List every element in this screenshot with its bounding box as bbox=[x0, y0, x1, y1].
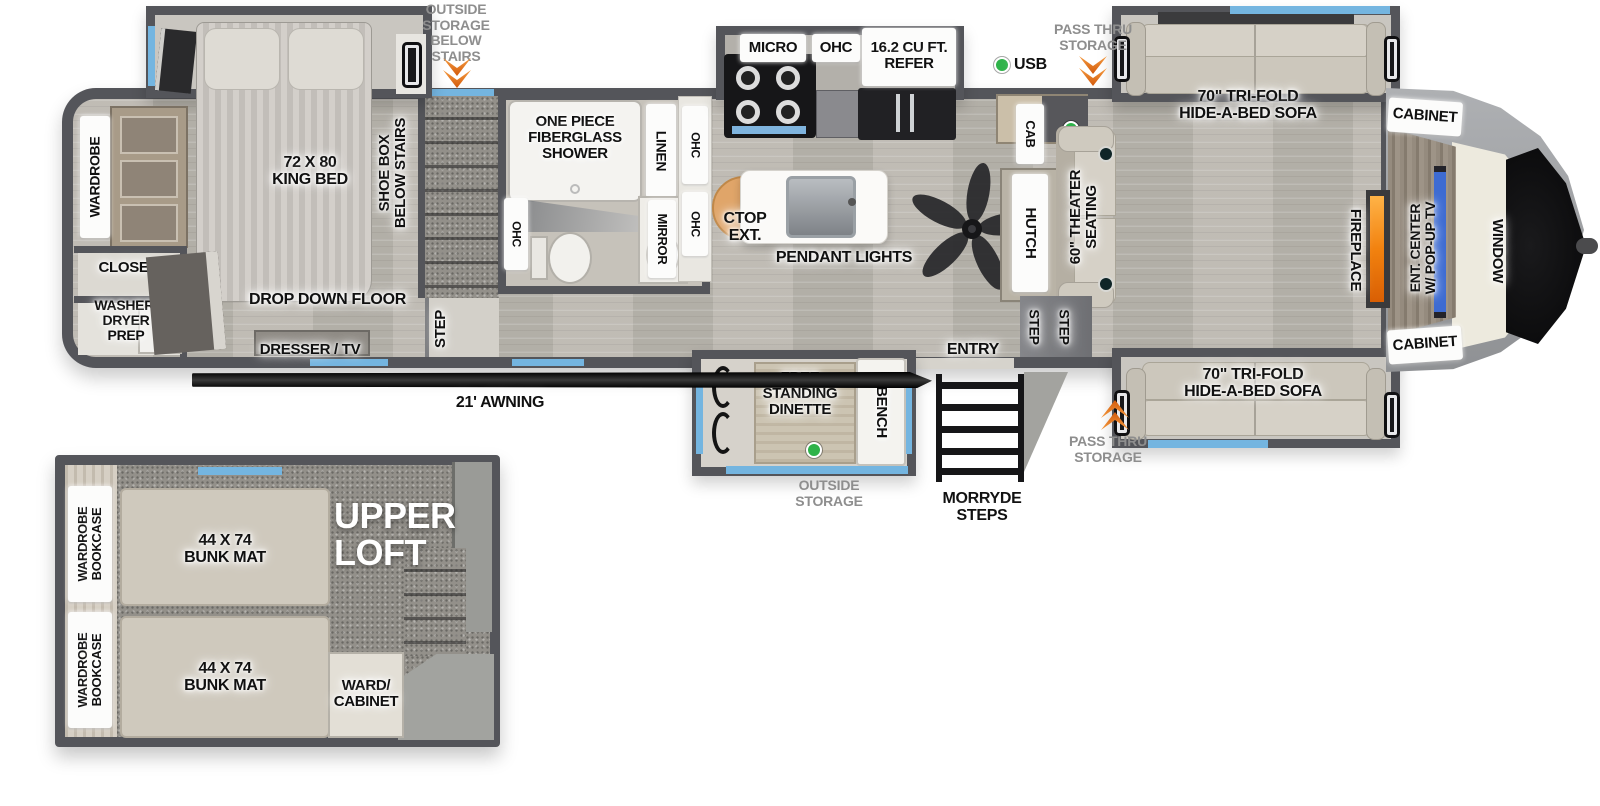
burner-icon bbox=[776, 66, 800, 90]
fireplace-label-wrap: FIREPLACE bbox=[1342, 194, 1368, 306]
staircase bbox=[425, 96, 499, 298]
window-strip-bottom-2 bbox=[512, 359, 584, 366]
usb-label: USB bbox=[1014, 56, 1058, 73]
slide-window-icon bbox=[1384, 36, 1400, 82]
closet-wall-top bbox=[74, 246, 186, 253]
dinette-window-bottom bbox=[726, 466, 908, 474]
bath-ohc-left-label: OHC bbox=[510, 221, 523, 247]
refer-label: 16.2 CU FT. REFER bbox=[862, 40, 956, 72]
king-bed-label: 72 X 80 KING BED bbox=[235, 154, 385, 188]
stair-wall bbox=[418, 96, 425, 298]
burner-icon bbox=[736, 100, 760, 124]
sofa-armrest bbox=[1366, 22, 1386, 96]
usb-led-icon bbox=[994, 57, 1010, 73]
pendant-lights-label: PENDANT LIGHTS bbox=[762, 249, 926, 266]
step-rung bbox=[942, 468, 1018, 475]
awning-icon bbox=[192, 372, 932, 388]
shoe-box-label: SHOE BOX BELOW STAIRS bbox=[377, 118, 409, 228]
ohc-upper-label: OHC bbox=[689, 132, 702, 158]
pillow bbox=[288, 28, 364, 90]
micro-label: MICRO bbox=[740, 40, 806, 56]
bench-label: BENCH bbox=[873, 386, 889, 438]
hutch-label: HUTCH bbox=[1022, 208, 1038, 259]
wardrobe-label: WARDROBE bbox=[88, 137, 103, 218]
entry-label: ENTRY bbox=[934, 341, 1012, 358]
sofa-top-seam bbox=[1254, 24, 1256, 94]
loft-wardrobe-lower-label: WARDROBE BOOKCASE bbox=[76, 633, 104, 708]
entry-step-right-wrap: STEP bbox=[1052, 300, 1076, 354]
outside-storage-bottom-label: OUTSIDE STORAGE bbox=[790, 478, 868, 509]
theater-label-wrap: 60" THEATER SEATING bbox=[1058, 152, 1110, 282]
ent-center-label: ENT. CENTER W/ POP-UP TV bbox=[1408, 202, 1438, 295]
dinette-chair-icon bbox=[712, 412, 734, 454]
wardrobe-plate: WARDROBE bbox=[80, 116, 110, 238]
shower-label: ONE PIECE FIBERGLASS SHOWER bbox=[512, 114, 638, 162]
loft-wardrobe-upper-label: WARDROBE BOOKCASE bbox=[76, 507, 104, 582]
kitchen-counter bbox=[816, 90, 862, 138]
faucet-icon bbox=[848, 198, 856, 206]
ent-center-label-wrap: ENT. CENTER W/ POP-UP TV bbox=[1398, 178, 1448, 318]
bunk-upper-label: 44 X 74 BUNK MAT bbox=[145, 532, 305, 566]
loft-wardrobe-plate-lower: WARDROBE BOOKCASE bbox=[68, 612, 112, 728]
toilet-tank-icon bbox=[530, 236, 548, 280]
cab-plate: CAB bbox=[1016, 104, 1044, 164]
dresser bbox=[110, 106, 188, 248]
loft-ward-cabinet-label: WARD/ CABINET bbox=[330, 678, 402, 710]
pass-thru-top-label: PASS THRU STORAGE bbox=[1038, 22, 1148, 53]
windshield bbox=[1506, 148, 1586, 344]
loft-wardrobe-plate-upper: WARDROBE BOOKCASE bbox=[68, 486, 112, 602]
dinette-window-right bbox=[905, 378, 912, 454]
entry-step-right-label: STEP bbox=[1057, 309, 1072, 344]
step-rail bbox=[1018, 374, 1024, 482]
bedroom-slide-window-left bbox=[148, 26, 155, 86]
entry-opening bbox=[916, 358, 1014, 369]
bedroom-step-label: STEP bbox=[433, 310, 449, 348]
step-rung bbox=[942, 382, 1018, 389]
pass-thru-bottom-label: PASS THRU STORAGE bbox=[1048, 434, 1168, 465]
cab-label: CAB bbox=[1023, 120, 1037, 147]
window-strip-top bbox=[430, 89, 494, 96]
chevron-up-icon bbox=[1098, 398, 1132, 432]
step-rung bbox=[942, 448, 1018, 455]
drawer bbox=[120, 116, 178, 154]
morryde-label: MORRYDE STEPS bbox=[936, 490, 1028, 524]
window-label-wrap: WINDOW bbox=[1484, 196, 1510, 306]
step-rung bbox=[942, 426, 1018, 433]
toilet-bowl-icon bbox=[548, 232, 592, 284]
kitchen-ohc-label: OHC bbox=[812, 40, 860, 56]
fireplace-label: FIREPLACE bbox=[1347, 209, 1363, 291]
entry-step-left-label: STEP bbox=[1027, 309, 1042, 344]
shower-drain-icon bbox=[570, 184, 580, 194]
window-strip-sofa-top bbox=[1230, 6, 1390, 14]
sofa-top-label: 70" TRI-FOLD HIDE-A-BED SOFA bbox=[1150, 88, 1346, 122]
fireplace-icon bbox=[1370, 196, 1384, 302]
floorplan-canvas: WARDROBE CLOSET WASHER/ DRYER PREP 72 X … bbox=[0, 0, 1600, 806]
drop-down-floor-label: DROP DOWN FLOOR bbox=[235, 291, 420, 308]
mirror-label: MIRROR bbox=[655, 214, 669, 265]
ohc-lower-label: OHC bbox=[689, 211, 702, 237]
sofa-bottom-back bbox=[1142, 400, 1370, 436]
theater-label: 60" THEATER SEATING bbox=[1068, 170, 1100, 264]
tv-cabinet bbox=[146, 251, 226, 355]
window-label: WINDOW bbox=[1489, 219, 1505, 283]
linen-plate: LINEN bbox=[646, 104, 676, 198]
dresser-tv-label: DRESSER / TV bbox=[240, 342, 380, 358]
ohc-lower-plate: OHC bbox=[682, 192, 708, 256]
chevron-down-icon bbox=[440, 56, 474, 90]
loft-window-strip bbox=[198, 467, 282, 475]
chevron-down-icon bbox=[1076, 54, 1110, 88]
pillow bbox=[204, 28, 280, 90]
step-rung bbox=[942, 404, 1018, 411]
bunk-lower-label: 44 X 74 BUNK MAT bbox=[145, 660, 305, 694]
awning-label: 21' AWNING bbox=[430, 394, 570, 411]
refrigerator-icon bbox=[858, 88, 956, 140]
dinette-window-left bbox=[696, 378, 703, 454]
slide-window-icon bbox=[1384, 392, 1400, 438]
hutch-plate: HUTCH bbox=[1012, 174, 1048, 292]
bedroom-step-label-wrap: STEP bbox=[430, 302, 452, 356]
ohc-upper-plate: OHC bbox=[682, 106, 708, 184]
drawer bbox=[120, 160, 178, 198]
upper-loft-title: UPPER LOFT bbox=[334, 498, 484, 571]
bath-ohc-left-plate: OHC bbox=[504, 198, 528, 270]
mirror-plate: MIRROR bbox=[648, 200, 676, 278]
sofa-armrest bbox=[1366, 368, 1386, 440]
window-strip-bottom-1 bbox=[310, 359, 388, 366]
burner-icon bbox=[736, 66, 760, 90]
fridge-handle bbox=[896, 94, 900, 132]
morryde-steps-icon bbox=[936, 372, 1024, 484]
island-sink-icon bbox=[786, 176, 856, 238]
ctop-ext-label: CTOP EXT. bbox=[712, 210, 778, 244]
drawer bbox=[120, 204, 178, 242]
dinette-led-icon bbox=[806, 442, 822, 458]
bedroom-tv-icon bbox=[155, 28, 197, 93]
linen-label: LINEN bbox=[654, 131, 669, 172]
stove-front-strip bbox=[732, 126, 806, 134]
burner-icon bbox=[776, 100, 800, 124]
entry-step-left-wrap: STEP bbox=[1022, 300, 1046, 354]
sofa-bottom-label: 70" TRI-FOLD HIDE-A-BED SOFA bbox=[1158, 366, 1348, 400]
hitch-pin-icon bbox=[1576, 238, 1598, 254]
sofa-top-back bbox=[1142, 24, 1370, 58]
fridge-handle bbox=[910, 94, 914, 132]
shoe-box-label-wrap: SHOE BOX BELOW STAIRS bbox=[370, 108, 416, 238]
